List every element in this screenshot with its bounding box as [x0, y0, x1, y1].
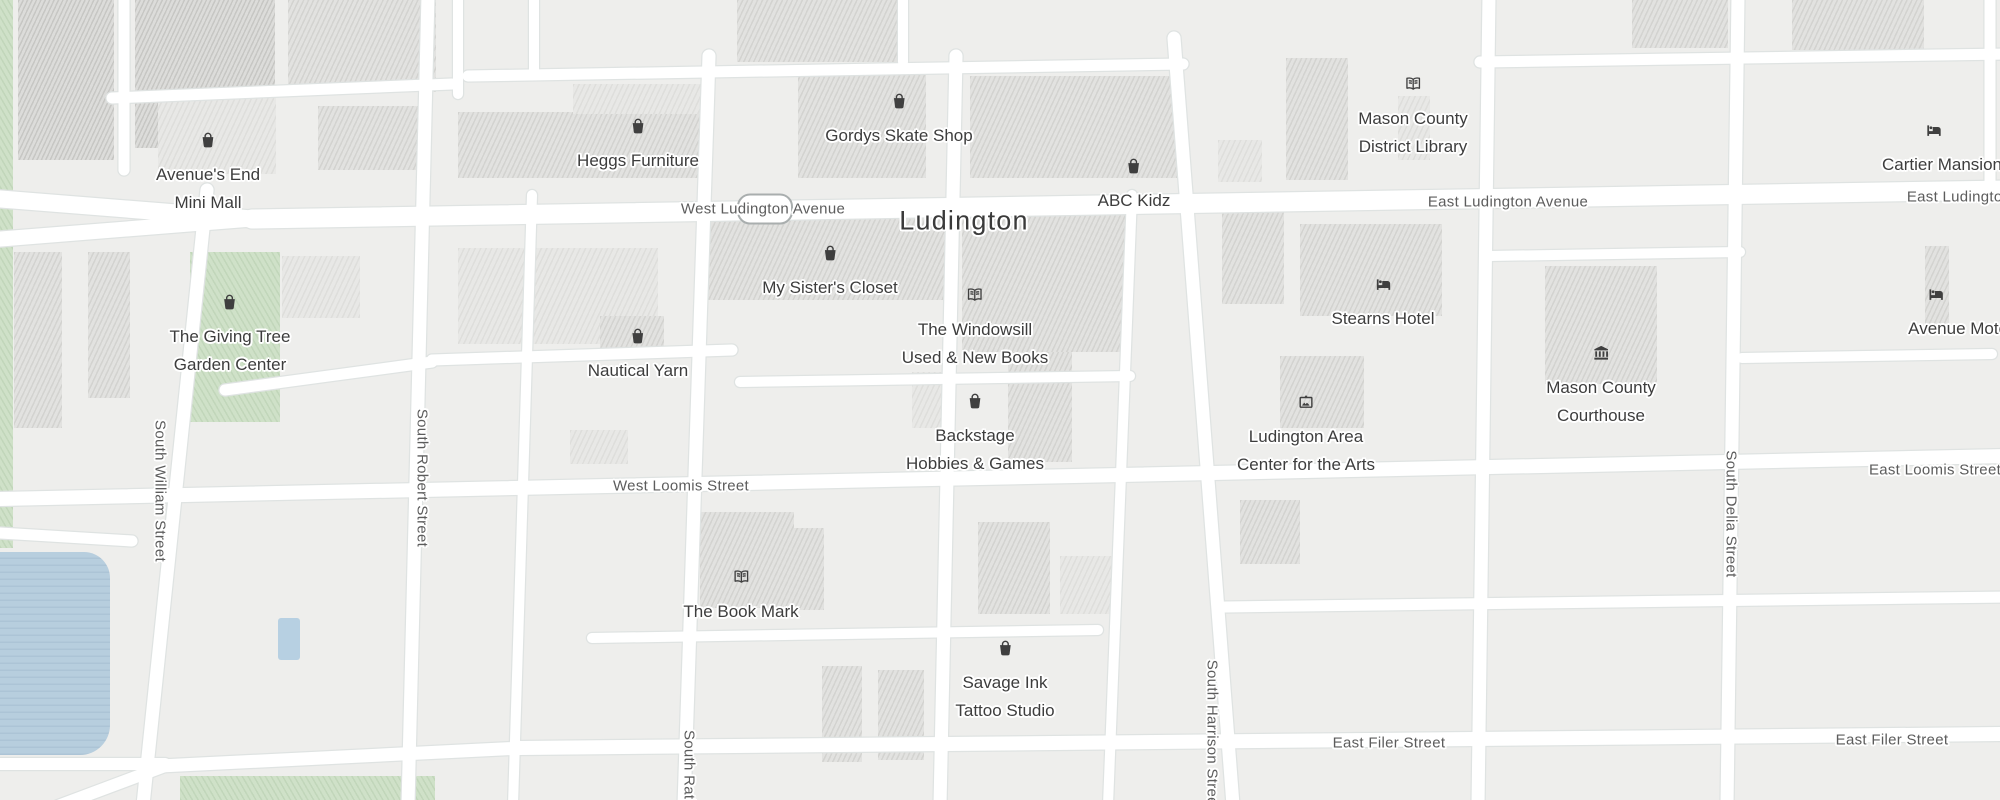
shopping-bag-icon [889, 91, 909, 111]
poi-label: BackstageHobbies & Games [906, 422, 1044, 478]
poi-label: Stearns Hotel [1332, 305, 1435, 333]
poi-marker-nautical-yarn[interactable]: Nautical Yarn [588, 326, 688, 385]
poi-label: The WindowsillUsed & New Books [902, 316, 1048, 372]
poi-marker-avenue-s-end-mini-mall[interactable]: Avenue's EndMini Mall [156, 130, 260, 217]
poi-marker-stearns-hotel[interactable]: Stearns Hotel [1332, 274, 1435, 333]
poi-label: The Giving TreeGarden Center [170, 323, 291, 379]
poi-label: Mason CountyCourthouse [1546, 374, 1656, 430]
book-icon [1403, 74, 1423, 94]
poi-marker-the-book-mark[interactable]: The Book Mark [683, 567, 798, 626]
poi-marker-gordys-skate-shop[interactable]: Gordys Skate Shop [825, 91, 972, 150]
poi-label: Ludington AreaCenter for the Arts [1237, 423, 1375, 479]
shopping-bag-icon [995, 638, 1015, 658]
poi-marker-abc-kidz[interactable]: ABC Kidz [1098, 156, 1171, 215]
poi-label: The Book Mark [683, 598, 798, 626]
shopping-bag-icon [1124, 156, 1144, 176]
shopping-bag-icon [965, 391, 985, 411]
poi-label: My Sister's Closet [762, 274, 898, 302]
art-gallery-icon [1296, 392, 1316, 412]
poi-label: Heggs Furniture [577, 147, 699, 175]
shopping-bag-icon [628, 116, 648, 136]
shopping-bag-icon [820, 243, 840, 263]
poi-marker-savage-ink-tattoo-studio[interactable]: Savage InkTattoo Studio [955, 638, 1054, 725]
poi-label: Gordys Skate Shop [825, 122, 972, 150]
poi-marker-heggs-furniture[interactable]: Heggs Furniture [577, 116, 699, 175]
poi-layer: Avenue's EndMini Mall Heggs Furniture Go… [0, 0, 2000, 800]
book-icon [965, 285, 985, 305]
poi-label: Avenue Motel [1908, 315, 2000, 343]
poi-label: Nautical Yarn [588, 357, 688, 385]
poi-marker-mason-county-courthouse[interactable]: Mason CountyCourthouse [1546, 343, 1656, 430]
shopping-bag-icon [198, 130, 218, 150]
poi-marker-the-windowsill-used-new-books[interactable]: The WindowsillUsed & New Books [902, 285, 1048, 372]
bed-icon [1926, 284, 1946, 304]
poi-label: ABC Kidz [1098, 187, 1171, 215]
poi-marker-my-sister-s-closet[interactable]: My Sister's Closet [762, 243, 898, 302]
poi-label: Mason CountyDistrict Library [1358, 105, 1468, 161]
poi-marker-avenue-motel[interactable]: Avenue Motel [1884, 284, 1988, 343]
shopping-bag-icon [628, 326, 648, 346]
poi-marker-cartier-mansion[interactable]: Cartier Mansion [1874, 120, 1994, 179]
poi-marker-ludington-area-center-for-the-arts[interactable]: Ludington AreaCenter for the Arts [1237, 392, 1375, 479]
bed-icon [1373, 274, 1393, 294]
poi-label: Savage InkTattoo Studio [955, 669, 1054, 725]
poi-label: Avenue's EndMini Mall [156, 161, 260, 217]
poi-marker-the-giving-tree-garden-center[interactable]: The Giving TreeGarden Center [170, 292, 291, 379]
bank-icon [1591, 343, 1611, 363]
book-icon [731, 567, 751, 587]
map-canvas[interactable]: West Ludington AvenueEast Ludington Aven… [0, 0, 2000, 800]
bed-icon [1924, 120, 1944, 140]
shopping-bag-icon [220, 292, 240, 312]
poi-marker-backstage-hobbies-games[interactable]: BackstageHobbies & Games [906, 391, 1044, 478]
poi-marker-mason-county-district-library[interactable]: Mason CountyDistrict Library [1358, 74, 1468, 161]
poi-label: Cartier Mansion [1882, 151, 2000, 179]
